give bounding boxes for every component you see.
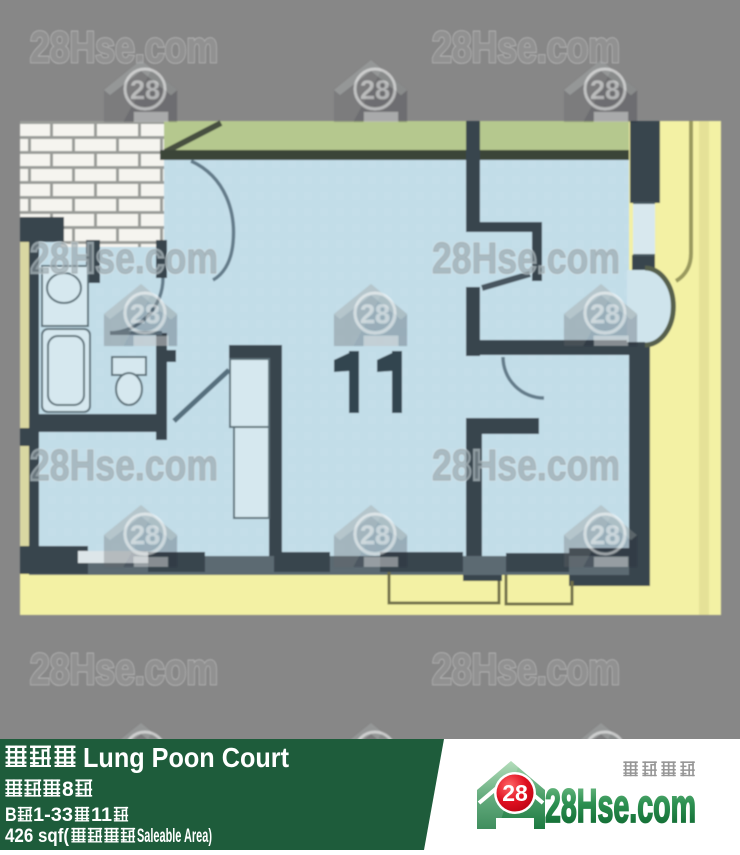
svg-text:8: 8: [62, 778, 74, 801]
svg-text:28Hse.com: 28Hse.com: [545, 779, 696, 832]
svg-text:11: 11: [91, 805, 112, 826]
svg-text:28: 28: [502, 780, 528, 806]
svg-text:B: B: [5, 805, 17, 826]
svg-text:426 sqf(: 426 sqf(: [5, 826, 70, 847]
svg-text:1-33: 1-33: [33, 805, 73, 826]
svg-text:Lung Poon Court: Lung Poon Court: [83, 742, 289, 773]
svg-text:Saleable Area): Saleable Area): [137, 826, 212, 847]
